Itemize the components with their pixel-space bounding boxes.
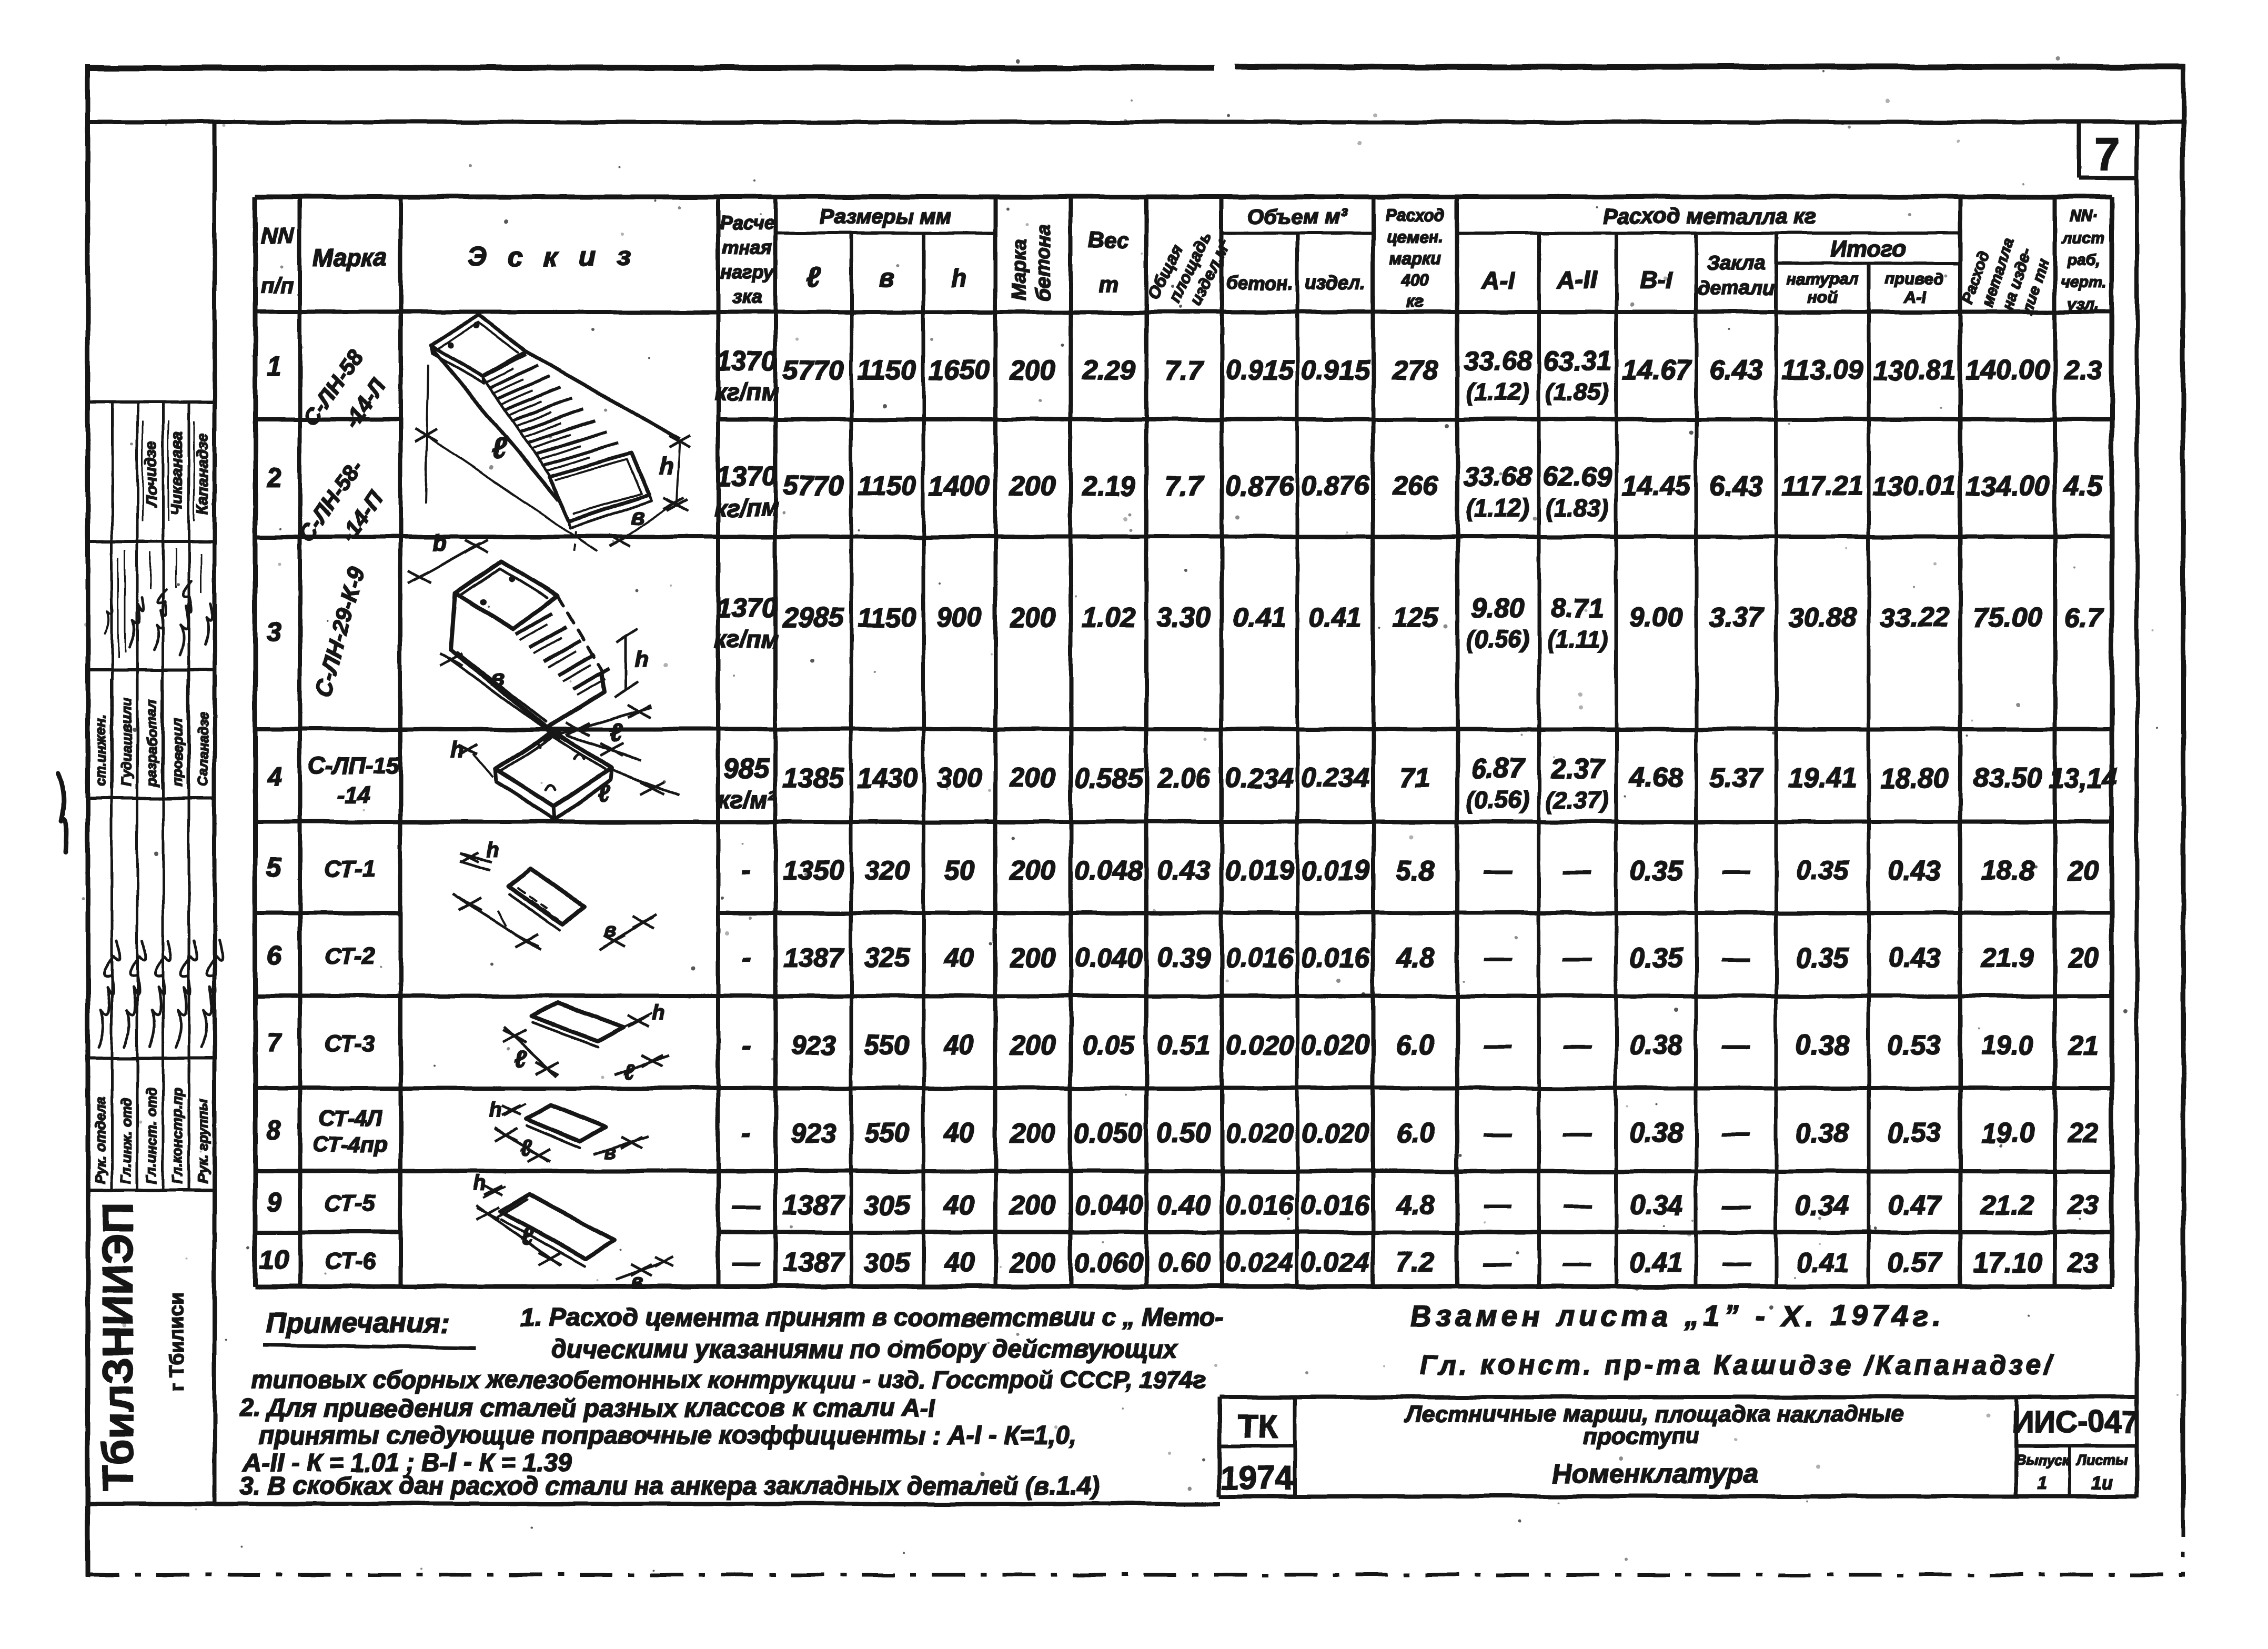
svg-text:33.68: 33.68	[1464, 461, 1532, 492]
svg-text:ℓ: ℓ	[491, 432, 507, 465]
svg-text:Рук. отдела: Рук. отдела	[93, 1097, 108, 1184]
svg-text:—: —	[1563, 1118, 1591, 1149]
svg-text:21: 21	[2068, 1030, 2099, 1061]
svg-text:проступи: проступи	[1583, 1423, 1699, 1449]
svg-text:75.00: 75.00	[1973, 602, 2042, 633]
svg-text:Гл.инст. отд: Гл.инст. отд	[144, 1088, 159, 1184]
svg-text:—: —	[1484, 943, 1512, 973]
svg-text:1370: 1370	[716, 593, 777, 624]
svg-text:лист: лист	[2061, 229, 2104, 247]
svg-text:5770: 5770	[783, 471, 844, 501]
svg-text:19.41: 19.41	[1788, 763, 1857, 793]
svg-text:200: 200	[1010, 602, 1056, 633]
svg-text:h: h	[489, 1098, 502, 1121]
svg-text:0.38: 0.38	[1796, 1118, 1849, 1149]
svg-text:Номенклатура: Номенклатура	[1552, 1459, 1758, 1489]
svg-text:62.69: 62.69	[1543, 461, 1611, 492]
svg-text:—: —	[1722, 943, 1750, 973]
svg-text:-14: -14	[337, 782, 370, 808]
svg-text:4.68: 4.68	[1629, 763, 1682, 793]
svg-text:1387: 1387	[783, 943, 845, 973]
svg-text:900: 900	[936, 602, 982, 633]
svg-text:7: 7	[2094, 129, 2120, 179]
svg-text:—: —	[1484, 1118, 1512, 1149]
svg-text:бетона: бетона	[1033, 225, 1055, 301]
svg-text:h: h	[951, 265, 966, 293]
svg-text:приняты следующие поправочны: приняты следующие поправочные коэффициен…	[259, 1422, 1076, 1450]
svg-text:0.39: 0.39	[1157, 943, 1210, 973]
svg-text:40: 40	[943, 1118, 974, 1149]
svg-text:6.43: 6.43	[1709, 355, 1762, 386]
svg-text:305: 305	[864, 1190, 911, 1221]
svg-text:0.915: 0.915	[1301, 355, 1370, 386]
svg-text:0.34: 0.34	[1629, 1190, 1682, 1221]
svg-text:0.234: 0.234	[1301, 763, 1369, 793]
svg-text:20: 20	[2068, 856, 2099, 886]
svg-text:(1.12): (1.12)	[1466, 494, 1529, 521]
svg-text:—: —	[1722, 1030, 1750, 1061]
svg-text:0.38: 0.38	[1796, 1030, 1849, 1061]
svg-text:ℓ: ℓ	[609, 719, 622, 747]
svg-text:Саланадзе: Саланадзе	[195, 711, 211, 787]
svg-text:0.020: 0.020	[1301, 1118, 1369, 1149]
svg-text:0.020: 0.020	[1225, 1118, 1294, 1149]
svg-text:200: 200	[1010, 355, 1056, 386]
svg-text:40: 40	[943, 1190, 974, 1221]
svg-text:4.8: 4.8	[1396, 943, 1434, 973]
svg-text:h: h	[487, 839, 500, 862]
svg-text:СТ-1: СТ-1	[325, 856, 375, 882]
svg-text:—: —	[1563, 1248, 1591, 1278]
svg-text:1400: 1400	[929, 471, 990, 501]
svg-text:цемен.: цемен.	[1387, 227, 1444, 246]
svg-text:0.53: 0.53	[1888, 1030, 1941, 1061]
svg-text:4.8: 4.8	[1396, 1190, 1434, 1221]
svg-text:33.68: 33.68	[1464, 346, 1532, 376]
svg-text:ст.инжен.: ст.инжен.	[93, 714, 108, 787]
svg-text:Марка: Марка	[313, 244, 387, 271]
svg-text:узл.: узл.	[2067, 296, 2099, 313]
svg-text:83.50: 83.50	[1973, 763, 2042, 793]
svg-text:Итого: Итого	[1830, 236, 1907, 262]
svg-text:4.5: 4.5	[2064, 471, 2103, 501]
svg-text:в: в	[490, 665, 505, 690]
svg-text:Гл. конст. пр-та Кашидзе /Кап: Гл. конст. пр-та Кашидзе /Капанадзе/	[1420, 1350, 2055, 1381]
svg-text:0.024: 0.024	[1225, 1248, 1294, 1278]
svg-text:кг/пм: кг/пм	[714, 494, 779, 521]
svg-text:—: —	[1484, 856, 1512, 886]
svg-text:6.0: 6.0	[1396, 1118, 1434, 1149]
svg-text:в: в	[631, 1271, 643, 1293]
svg-text:113.09: 113.09	[1781, 355, 1863, 386]
svg-text:0.34: 0.34	[1796, 1190, 1849, 1221]
svg-text:0.38: 0.38	[1629, 1030, 1682, 1061]
svg-text:кг/пм: кг/пм	[714, 378, 779, 406]
svg-text:13,14: 13,14	[2049, 763, 2118, 793]
svg-text:Гл.инж. отд: Гл.инж. отд	[118, 1098, 134, 1184]
svg-text:19.0: 19.0	[1981, 1118, 2034, 1149]
svg-text:1и: 1и	[2092, 1473, 2113, 1493]
svg-text:—: —	[1722, 856, 1750, 886]
svg-text:—: —	[732, 1248, 761, 1278]
svg-text:—: —	[1563, 856, 1591, 886]
svg-text:0.585: 0.585	[1074, 763, 1143, 793]
svg-text:3: 3	[267, 617, 281, 647]
svg-text:СТ-5: СТ-5	[325, 1191, 376, 1216]
svg-text:0.040: 0.040	[1074, 943, 1143, 973]
svg-text:А-I: А-I	[1903, 288, 1926, 306]
svg-text:0.35: 0.35	[1629, 856, 1683, 886]
svg-text:(1.85): (1.85)	[1546, 378, 1609, 406]
svg-text:140.00: 140.00	[1965, 355, 2049, 386]
svg-text:0.38: 0.38	[1629, 1118, 1682, 1149]
svg-text:10: 10	[259, 1245, 289, 1274]
svg-text:ТбилЗНИИЭП: ТбилЗНИИЭП	[94, 1203, 142, 1492]
svg-text:8: 8	[267, 1115, 281, 1145]
svg-text:кг: кг	[1406, 292, 1424, 311]
svg-text:-: -	[742, 1030, 751, 1061]
svg-text:2: 2	[266, 464, 281, 493]
svg-text:привед: привед	[1885, 269, 1944, 288]
svg-text:СТ-3: СТ-3	[325, 1031, 375, 1057]
svg-text:200: 200	[1010, 471, 1056, 501]
svg-text:1370: 1370	[716, 346, 777, 376]
svg-text:33.22: 33.22	[1880, 602, 1949, 633]
svg-text:130.81: 130.81	[1872, 355, 1956, 386]
svg-text:1650: 1650	[929, 355, 990, 386]
svg-text:b: b	[433, 530, 447, 556]
svg-text:нагру: нагру	[720, 261, 775, 283]
svg-text:в: в	[880, 265, 895, 293]
svg-text:2.3: 2.3	[2064, 355, 2102, 386]
svg-text:кг/пм: кг/пм	[714, 626, 779, 653]
svg-text:19.0: 19.0	[1981, 1030, 2034, 1061]
svg-text:СТ-6: СТ-6	[325, 1248, 376, 1274]
svg-text:С-ЛП-15: С-ЛП-15	[308, 753, 399, 779]
svg-text:—: —	[1563, 1190, 1591, 1221]
svg-text:1: 1	[267, 351, 281, 381]
svg-text:СТ-4Л: СТ-4Л	[318, 1105, 382, 1130]
svg-text:—: —	[1722, 1118, 1750, 1149]
svg-text:9.80: 9.80	[1471, 593, 1524, 624]
svg-text:1150: 1150	[858, 602, 916, 633]
svg-text:ИИС-047: ИИС-047	[2011, 1405, 2138, 1439]
svg-text:7.7: 7.7	[1165, 471, 1204, 501]
svg-text:6.0: 6.0	[1396, 1030, 1434, 1061]
svg-text:923: 923	[791, 1118, 836, 1149]
svg-text:детали: детали	[1698, 277, 1775, 299]
svg-text:305: 305	[864, 1248, 911, 1278]
svg-text:ной: ной	[1808, 288, 1838, 306]
svg-text:1974: 1974	[1221, 1460, 1293, 1496]
svg-text:проверил: проверил	[169, 718, 185, 787]
svg-text:—: —	[1484, 1030, 1512, 1061]
svg-text:23: 23	[2068, 1248, 2099, 1278]
svg-text:ℓ: ℓ	[624, 1060, 635, 1083]
svg-text:Закла: Закла	[1707, 252, 1766, 274]
svg-text:ℓ: ℓ	[515, 1047, 527, 1072]
svg-text:278: 278	[1392, 355, 1438, 386]
svg-text:0.35: 0.35	[1796, 856, 1849, 886]
svg-text:0.050: 0.050	[1074, 1118, 1143, 1149]
svg-text:—: —	[1722, 1190, 1750, 1221]
svg-text:издел.: издел.	[1305, 272, 1366, 294]
svg-text:В-I: В-I	[1640, 266, 1673, 294]
svg-text:17.10: 17.10	[1973, 1248, 2042, 1278]
svg-text:0.016: 0.016	[1301, 943, 1370, 973]
svg-text:325: 325	[864, 943, 911, 973]
svg-text:266: 266	[1392, 471, 1439, 501]
svg-text:А-I: А-I	[1481, 266, 1515, 294]
svg-text:черт.: черт.	[2060, 274, 2106, 291]
svg-text:дическими указаниями по отб: дическими указаниями по отбору действующ…	[551, 1335, 1178, 1363]
svg-text:0.43: 0.43	[1157, 856, 1210, 886]
svg-text:ℓ: ℓ	[598, 780, 610, 807]
svg-text:200: 200	[1010, 1030, 1056, 1061]
svg-text:0.43: 0.43	[1888, 856, 1941, 886]
svg-text:0.915: 0.915	[1225, 355, 1294, 386]
svg-text:125: 125	[1393, 602, 1439, 633]
svg-text:0.019: 0.019	[1225, 856, 1294, 886]
svg-text:134.00: 134.00	[1965, 471, 2049, 501]
svg-text:(1.12): (1.12)	[1466, 378, 1529, 406]
svg-text:117.21: 117.21	[1781, 471, 1863, 501]
svg-text:т: т	[1098, 272, 1118, 297]
svg-text:(0.56): (0.56)	[1466, 786, 1529, 813]
svg-text:30.88: 30.88	[1788, 602, 1857, 633]
svg-text:9.00: 9.00	[1629, 602, 1682, 633]
svg-text:20: 20	[2068, 943, 2099, 973]
svg-text:h: h	[652, 1001, 665, 1024]
svg-text:200: 200	[1010, 943, 1056, 973]
svg-text:5770: 5770	[783, 355, 844, 386]
svg-text:985: 985	[724, 753, 770, 784]
svg-text:0.016: 0.016	[1301, 1190, 1370, 1221]
svg-text:21.9: 21.9	[1980, 943, 2034, 973]
svg-text:Расход: Расход	[1386, 206, 1445, 225]
svg-text:0.05: 0.05	[1082, 1030, 1135, 1061]
svg-text:Выпуск: Выпуск	[2015, 1452, 2070, 1468]
svg-text:ℓ: ℓ	[520, 1135, 532, 1160]
svg-text:0.020: 0.020	[1301, 1030, 1369, 1061]
svg-text:550: 550	[864, 1030, 910, 1061]
svg-text:3.37: 3.37	[1709, 602, 1763, 633]
svg-text:300: 300	[936, 763, 982, 793]
svg-text:разработал: разработал	[144, 699, 159, 787]
svg-text:0.41: 0.41	[1233, 602, 1286, 633]
svg-text:раб,: раб,	[2067, 252, 2100, 269]
svg-text:1370: 1370	[716, 461, 777, 492]
svg-text:0.019: 0.019	[1301, 856, 1369, 886]
svg-text:h: h	[635, 647, 649, 672]
svg-text:—: —	[1722, 1248, 1750, 1278]
svg-text:0.040: 0.040	[1074, 1190, 1143, 1221]
svg-text:NN: NN	[260, 223, 295, 248]
svg-text:18.8: 18.8	[1981, 856, 2034, 886]
svg-text:320: 320	[864, 856, 910, 886]
svg-text:-: -	[742, 1118, 751, 1149]
svg-text:Лочидзе: Лочидзе	[143, 441, 160, 507]
svg-text:Гудиашвили: Гудиашвили	[118, 697, 134, 787]
svg-text:9: 9	[267, 1188, 281, 1217]
svg-text:7.7: 7.7	[1165, 355, 1204, 386]
svg-text:6.87: 6.87	[1471, 753, 1525, 784]
svg-text:0.876: 0.876	[1301, 471, 1370, 501]
svg-text:0.876: 0.876	[1225, 471, 1294, 501]
svg-text:0.234: 0.234	[1225, 763, 1294, 793]
svg-text:0.60: 0.60	[1157, 1248, 1210, 1278]
svg-text:23: 23	[2068, 1190, 2099, 1221]
svg-text:0.41: 0.41	[1308, 602, 1362, 633]
svg-text:(1.11): (1.11)	[1547, 626, 1608, 653]
svg-text:0.016: 0.016	[1225, 943, 1294, 973]
svg-text:22: 22	[2068, 1118, 2099, 1149]
svg-text:0.048: 0.048	[1074, 856, 1143, 886]
svg-text:63.31: 63.31	[1543, 346, 1611, 376]
svg-text:Рук. группы: Рук. группы	[195, 1098, 211, 1184]
svg-text:0.40: 0.40	[1157, 1190, 1210, 1221]
svg-text:0.43: 0.43	[1888, 943, 1941, 973]
svg-text:Гл.констр.пр: Гл.констр.пр	[169, 1088, 185, 1184]
svg-text:6.43: 6.43	[1709, 471, 1762, 501]
svg-text:3. В скобках дан расход ст: 3. В скобках дан расход стали на анкера …	[239, 1472, 1100, 1500]
svg-text:—: —	[1563, 943, 1591, 973]
svg-text:1150: 1150	[858, 355, 916, 386]
svg-text:0.57: 0.57	[1888, 1248, 1942, 1278]
svg-text:0.47: 0.47	[1888, 1190, 1942, 1221]
svg-text:А-II: А-II	[1557, 266, 1597, 294]
svg-text:-: -	[742, 856, 751, 886]
svg-text:зка: зка	[732, 286, 762, 307]
svg-text:Марка: Марка	[1009, 239, 1031, 301]
svg-text:Объем м³: Объем м³	[1248, 205, 1348, 228]
svg-text:5: 5	[267, 853, 282, 882]
svg-text:—: —	[1484, 1248, 1512, 1278]
svg-text:1387: 1387	[783, 1190, 845, 1221]
svg-text:2.29: 2.29	[1081, 355, 1135, 386]
svg-text:923: 923	[791, 1030, 836, 1061]
svg-text:2. Для приведения сталей ра: 2. Для приведения сталей разных классов …	[239, 1394, 936, 1422]
svg-text:1: 1	[2038, 1473, 2048, 1493]
svg-text:14.67: 14.67	[1622, 355, 1691, 386]
svg-text:3.30: 3.30	[1157, 602, 1210, 633]
svg-text:0.060: 0.060	[1074, 1248, 1143, 1278]
svg-text:200: 200	[1010, 856, 1056, 886]
svg-text:Капанадзе: Капанадзе	[194, 433, 211, 515]
svg-text:Чикванава: Чикванава	[168, 432, 186, 515]
svg-text:1387: 1387	[783, 1248, 845, 1278]
svg-text:200: 200	[1010, 763, 1056, 793]
svg-text:NN·: NN·	[2069, 207, 2097, 225]
svg-text:Расче: Расче	[720, 212, 774, 233]
svg-text:марки: марки	[1390, 249, 1441, 268]
svg-text:h: h	[473, 1172, 486, 1195]
svg-text:0.41: 0.41	[1796, 1248, 1849, 1278]
svg-text:Размеры мм: Размеры мм	[820, 205, 951, 228]
svg-text:0.020: 0.020	[1225, 1030, 1294, 1061]
svg-text:200: 200	[1010, 1248, 1056, 1278]
svg-text:1430: 1430	[856, 763, 918, 793]
svg-text:6.7: 6.7	[2064, 602, 2103, 633]
svg-text:h: h	[450, 737, 463, 761]
svg-text:п/п: п/п	[261, 273, 294, 298]
svg-text:h: h	[659, 452, 673, 479]
svg-text:(1.83): (1.83)	[1546, 494, 1609, 521]
svg-text:Расход металла кг: Расход металла кг	[1603, 204, 1817, 228]
svg-text:—: —	[1484, 1190, 1512, 1221]
svg-text:0.35: 0.35	[1796, 943, 1849, 973]
svg-text:40: 40	[943, 943, 974, 973]
svg-text:40: 40	[943, 1248, 974, 1278]
svg-text:0.35: 0.35	[1629, 943, 1683, 973]
svg-text:в: в	[604, 919, 617, 941]
svg-text:(0.56): (0.56)	[1466, 626, 1529, 653]
svg-text:Взамен листа „1” - Х.: Взамен листа „1” - Х. 1974г.	[1410, 1299, 1945, 1332]
svg-text:200: 200	[1010, 1118, 1056, 1149]
svg-text:типовых сборных железобетон: типовых сборных железобетонных контрукци…	[251, 1366, 1206, 1393]
svg-text:2.37: 2.37	[1550, 753, 1605, 784]
svg-text:0.51: 0.51	[1157, 1030, 1210, 1061]
svg-text:200: 200	[1010, 1190, 1056, 1221]
svg-text:СТ-2: СТ-2	[325, 943, 376, 969]
svg-text:0.41: 0.41	[1629, 1248, 1682, 1278]
svg-text:7: 7	[267, 1028, 283, 1057]
svg-text:1385: 1385	[783, 763, 844, 793]
svg-text:г Тбилиси: г Тбилиси	[166, 1292, 188, 1391]
svg-text:40: 40	[943, 1030, 974, 1061]
svg-text:5.8: 5.8	[1396, 856, 1434, 886]
svg-text:в: в	[631, 504, 645, 529]
svg-text:Вес: Вес	[1088, 227, 1129, 252]
svg-text:1. Расход цемента принят в соо: 1. Расход цемента принят в соответствии …	[521, 1304, 1224, 1332]
svg-text:(2.37): (2.37)	[1546, 786, 1609, 813]
svg-text:в: в	[604, 1141, 617, 1163]
svg-text:8.71: 8.71	[1550, 593, 1604, 624]
svg-text:50: 50	[944, 856, 974, 886]
svg-text:Листы: Листы	[2075, 1452, 2128, 1468]
svg-text:натурал: натурал	[1787, 269, 1858, 288]
svg-text:1350: 1350	[783, 856, 844, 886]
svg-text:2985: 2985	[782, 602, 844, 633]
svg-text:Примечания:: Примечания:	[266, 1307, 450, 1339]
svg-text:2.06: 2.06	[1156, 763, 1211, 793]
svg-text:0.50: 0.50	[1157, 1118, 1210, 1149]
svg-text:ТК: ТК	[1237, 1409, 1277, 1445]
svg-text:400: 400	[1400, 270, 1429, 289]
svg-text:бетон.: бетон.	[1226, 272, 1293, 294]
svg-text:СТ-4пр: СТ-4пр	[312, 1132, 387, 1157]
svg-text:0.016: 0.016	[1225, 1190, 1294, 1221]
svg-text:-: -	[742, 943, 751, 973]
svg-text:Эскиз: Эскиз	[467, 242, 652, 272]
svg-text:кг/м²: кг/м²	[718, 786, 777, 813]
svg-text:0.024: 0.024	[1301, 1248, 1369, 1278]
svg-text:4: 4	[266, 761, 281, 791]
svg-text:1150: 1150	[858, 471, 916, 501]
svg-text:21.2: 21.2	[1980, 1190, 2034, 1221]
svg-text:—: —	[1563, 1030, 1591, 1061]
svg-text:5.37: 5.37	[1709, 763, 1763, 793]
svg-text:7.2: 7.2	[1396, 1248, 1434, 1278]
svg-text:—: —	[732, 1190, 761, 1221]
svg-text:71: 71	[1400, 763, 1430, 793]
svg-text:550: 550	[864, 1118, 910, 1149]
svg-text:18.80: 18.80	[1880, 763, 1949, 793]
svg-text:2.19: 2.19	[1081, 471, 1135, 501]
svg-text:1.02: 1.02	[1082, 602, 1135, 633]
svg-text:130.01: 130.01	[1872, 471, 1956, 501]
svg-text:тная: тная	[722, 236, 772, 258]
